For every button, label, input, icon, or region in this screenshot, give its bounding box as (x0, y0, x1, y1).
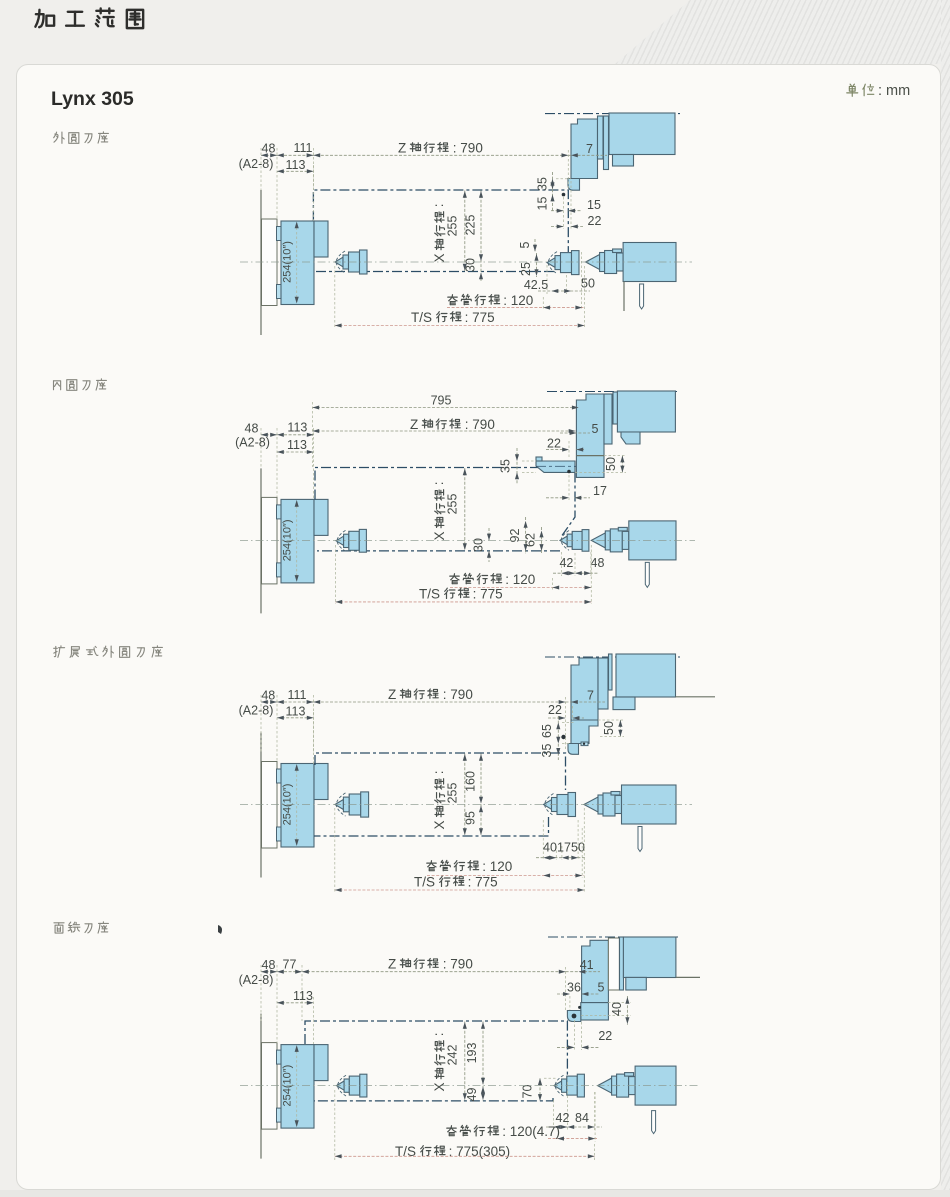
svg-text:225: 225 (464, 215, 478, 236)
svg-text:35: 35 (499, 459, 513, 473)
svg-text:62: 62 (524, 533, 538, 547)
svg-text:: 120: : 120 (503, 293, 533, 308)
svg-text::: : (431, 1032, 446, 1036)
svg-text:: 790: : 790 (453, 141, 483, 156)
svg-text:50: 50 (571, 841, 585, 855)
svg-text:36: 36 (567, 981, 581, 995)
svg-text:65: 65 (540, 724, 554, 738)
svg-text:160: 160 (464, 771, 478, 792)
svg-text:: 790: : 790 (443, 687, 473, 702)
svg-text:111: 111 (293, 141, 312, 155)
svg-text:113: 113 (286, 705, 306, 719)
svg-text:: 120: : 120 (482, 859, 512, 874)
svg-text:113: 113 (287, 438, 307, 452)
svg-text:255: 255 (446, 783, 460, 804)
svg-text:42: 42 (559, 556, 573, 570)
svg-text:22: 22 (588, 214, 602, 228)
svg-text:Z: Z (388, 957, 396, 972)
svg-text:48: 48 (591, 556, 605, 570)
svg-text:48: 48 (245, 422, 259, 436)
svg-text:113: 113 (287, 421, 307, 435)
svg-text:7: 7 (586, 142, 593, 156)
svg-text:50: 50 (581, 277, 595, 291)
svg-text:50: 50 (602, 721, 616, 735)
svg-text:5: 5 (518, 241, 532, 248)
svg-text:84: 84 (575, 1111, 589, 1125)
svg-text:48: 48 (262, 142, 276, 156)
svg-text:113: 113 (293, 989, 313, 1003)
svg-text:(A2-8): (A2-8) (235, 436, 270, 450)
svg-text:25: 25 (519, 262, 533, 276)
svg-text:Z: Z (388, 687, 396, 702)
svg-text:41: 41 (580, 958, 594, 972)
svg-text:50: 50 (604, 457, 618, 471)
svg-text:17: 17 (557, 841, 571, 855)
svg-text:40: 40 (543, 841, 557, 855)
svg-text:X: X (432, 531, 447, 540)
svg-text:Lynx 305: Lynx 305 (51, 88, 134, 110)
svg-text:: mm: : mm (878, 83, 910, 99)
svg-text:T/S: T/S (414, 875, 435, 890)
svg-text:255: 255 (446, 216, 460, 237)
svg-text:795: 795 (431, 394, 452, 408)
svg-text:15: 15 (536, 197, 550, 211)
svg-text:X: X (432, 820, 447, 829)
svg-text:70: 70 (521, 1085, 535, 1099)
svg-text:242: 242 (446, 1045, 460, 1066)
svg-text:(A2-8): (A2-8) (239, 973, 274, 987)
svg-text:35: 35 (540, 744, 554, 758)
svg-text:X: X (432, 1082, 447, 1091)
svg-text:Z: Z (398, 141, 406, 156)
svg-text:: 120(4.7): : 120(4.7) (502, 1124, 560, 1139)
svg-text:48: 48 (262, 958, 276, 972)
svg-text:7: 7 (587, 689, 594, 703)
svg-text:49: 49 (465, 1088, 479, 1102)
svg-text:22: 22 (548, 703, 562, 717)
svg-text:T/S: T/S (395, 1144, 416, 1159)
svg-text:22: 22 (598, 1029, 612, 1043)
svg-text:193: 193 (465, 1043, 479, 1064)
svg-text:113: 113 (286, 158, 306, 172)
svg-text:5: 5 (592, 422, 599, 436)
svg-text:17: 17 (593, 484, 607, 498)
svg-text:: 775: : 775 (473, 587, 503, 602)
svg-text:255: 255 (446, 494, 460, 515)
svg-text:35: 35 (536, 177, 550, 191)
svg-text:30: 30 (464, 258, 478, 272)
svg-text:95: 95 (464, 811, 478, 825)
svg-text:5: 5 (598, 981, 605, 995)
svg-text:15: 15 (587, 198, 601, 212)
svg-text:T/S: T/S (419, 587, 440, 602)
svg-text:77: 77 (283, 958, 297, 972)
svg-text::: : (431, 203, 446, 207)
svg-text:42: 42 (556, 1111, 570, 1125)
svg-text:: 790: : 790 (465, 417, 495, 432)
svg-text:: 120: : 120 (505, 572, 535, 587)
svg-text:40: 40 (610, 1002, 624, 1016)
svg-text:: 775(305): : 775(305) (449, 1144, 511, 1159)
svg-text:111: 111 (287, 688, 306, 702)
svg-text:: 775: : 775 (465, 310, 495, 325)
svg-text:(A2-8): (A2-8) (239, 157, 274, 171)
svg-text:T/S: T/S (411, 310, 432, 325)
svg-text:Z: Z (410, 417, 418, 432)
svg-text::: : (431, 481, 446, 485)
svg-text:22: 22 (547, 437, 561, 451)
svg-text:: 775: : 775 (468, 875, 498, 890)
svg-text::: : (431, 770, 446, 774)
svg-text:X: X (432, 253, 447, 262)
svg-text:48: 48 (261, 689, 275, 703)
svg-text:: 790: : 790 (443, 957, 473, 972)
svg-text:42.5: 42.5 (524, 278, 548, 292)
svg-text:(A2-8): (A2-8) (239, 704, 274, 718)
